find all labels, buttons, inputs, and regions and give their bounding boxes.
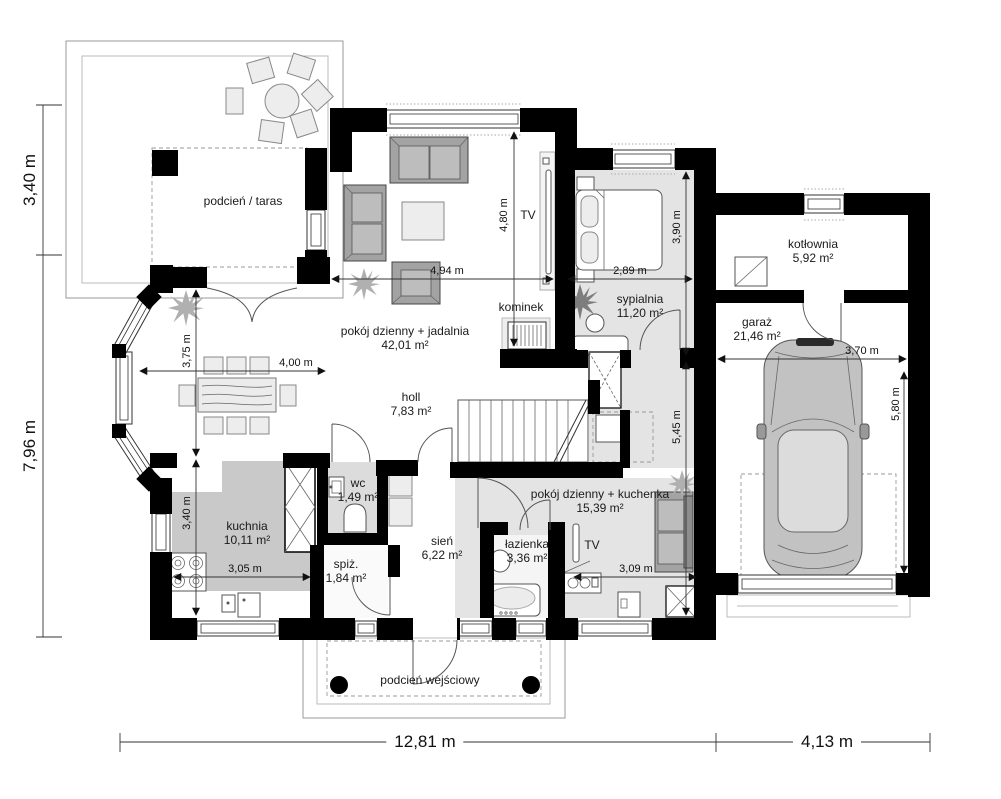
- floor-plan: podcień / taras pokój dzienny + jadalnia…: [0, 0, 1001, 799]
- room-label-hall: holl 7,83 m²: [391, 390, 432, 418]
- room-name: kuchnia: [224, 519, 270, 533]
- room-area: 21,46 m²: [733, 329, 780, 343]
- tv-label: TV: [520, 208, 535, 222]
- porch-column-icon: [522, 676, 540, 694]
- room-label-kitchen: kuchnia 10,11 m²: [224, 519, 270, 547]
- wc-door: [332, 424, 370, 462]
- dim-house-side: 7,96 m: [23, 412, 37, 480]
- car-icon: [757, 338, 869, 578]
- room-label-terrace: podcień / taras: [204, 194, 283, 208]
- dim-terrace-depth: 3,40 m: [23, 146, 37, 214]
- staircase: [458, 400, 588, 462]
- room-area: 5,92 m²: [788, 251, 838, 265]
- dim-garage-inner-width: 3,70 m: [845, 344, 879, 358]
- kitchenette-appliance-icon: [618, 592, 640, 617]
- room-name: kotłownia: [788, 237, 838, 251]
- room-name: sień: [422, 534, 463, 548]
- sofa-icon: [390, 137, 468, 183]
- room-label-boiler-room: kotłownia 5,92 m²: [788, 237, 838, 265]
- tv-icon: [540, 152, 555, 290]
- dim-house-width: 12,81 m: [386, 735, 463, 749]
- room-name: sypialnia: [617, 292, 664, 306]
- terrace-table-icon: [226, 53, 333, 143]
- room-area: 3,36 m²: [505, 551, 549, 565]
- dim-living-width: 4,94 m: [430, 264, 464, 278]
- dim-garage-width-overall: 4,13 m: [793, 735, 861, 749]
- room-area: 15,39 m²: [531, 501, 669, 515]
- room-area: 10,11 m²: [224, 533, 270, 547]
- room-area: 7,83 m²: [391, 404, 432, 418]
- room-area: 11,20 m²: [617, 306, 664, 320]
- floor-plan-drawing: [0, 0, 1001, 799]
- boiler-room-door: [803, 303, 841, 341]
- room-area: 1,84 m²: [326, 571, 367, 585]
- tv-label: TV: [584, 538, 599, 552]
- room-label-living: pokój dzienny + jadalnia 42,01 m²: [341, 324, 469, 352]
- sofa-icon: [344, 185, 386, 261]
- boiler-icon: [735, 257, 767, 286]
- dim-guest-depth: 5,45 m: [670, 410, 684, 444]
- room-label-garage: garaż 21,46 m²: [733, 315, 780, 343]
- room-name: pokój dzienny + jadalnia: [341, 324, 469, 338]
- wardrobe-icon: [285, 462, 315, 552]
- room-label-pantry: spiż. 1,84 m²: [326, 557, 367, 585]
- plant-icon: [168, 290, 204, 326]
- room-area: 1,49 m²: [338, 490, 379, 504]
- room-name: garaż: [733, 315, 780, 329]
- room-area: 6,22 m²: [422, 548, 463, 562]
- wc-toilet-icon: [344, 504, 366, 532]
- wardrobe-icon: [666, 586, 695, 617]
- room-name: pokój dzienny + kuchenka: [531, 487, 669, 501]
- stove-icon: [168, 553, 206, 591]
- dim-bedroom-depth: 3,90 m: [670, 210, 684, 244]
- dim-guest-width: 3,09 m: [619, 562, 653, 576]
- fireplace-label: kominek: [499, 300, 544, 314]
- dim-bedroom-width: 2,89 m: [613, 264, 647, 278]
- dim-living-depth: 4,80 m: [497, 198, 511, 232]
- vestibule-cabinet-icon: [389, 468, 412, 526]
- tv-icon: [573, 524, 579, 562]
- room-name: holl: [391, 390, 432, 404]
- dim-kitchen-depth: 3,40 m: [180, 496, 194, 530]
- room-name: spiż.: [326, 557, 367, 571]
- room-label-vestibule: sień 6,22 m²: [422, 534, 463, 562]
- room-label-entrance-porch: podcień wejściowy: [380, 673, 479, 687]
- room-name: łazienka: [505, 537, 549, 551]
- room-label-bedroom: sypialnia 11,20 m²: [617, 292, 664, 320]
- room-area: 42,01 m²: [341, 338, 469, 352]
- room-label-wc: wc 1,49 m²: [338, 476, 379, 504]
- fireplace-icon: [502, 318, 550, 352]
- room-label-bathroom: łazienka 3,36 m²: [505, 537, 549, 565]
- terrace-door: [207, 288, 297, 322]
- hall-vestibule-door: [418, 428, 452, 462]
- bathtub-icon: [486, 584, 540, 616]
- room-label-guest-room: pokój dzienny + kuchenka 15,39 m²: [531, 487, 669, 515]
- coffee-table-icon: [402, 202, 444, 240]
- dim-kitchen-width: 3,05 m: [228, 562, 262, 576]
- garage-door: [738, 575, 896, 593]
- dim-garage-inner-depth: 5,80 m: [889, 387, 903, 421]
- dim-dining-width: 4,00 m: [279, 356, 313, 370]
- room-name: wc: [338, 476, 379, 490]
- dim-dining-depth: 3,75 m: [180, 334, 194, 368]
- porch-column-icon: [330, 676, 348, 694]
- plant-icon: [348, 268, 380, 300]
